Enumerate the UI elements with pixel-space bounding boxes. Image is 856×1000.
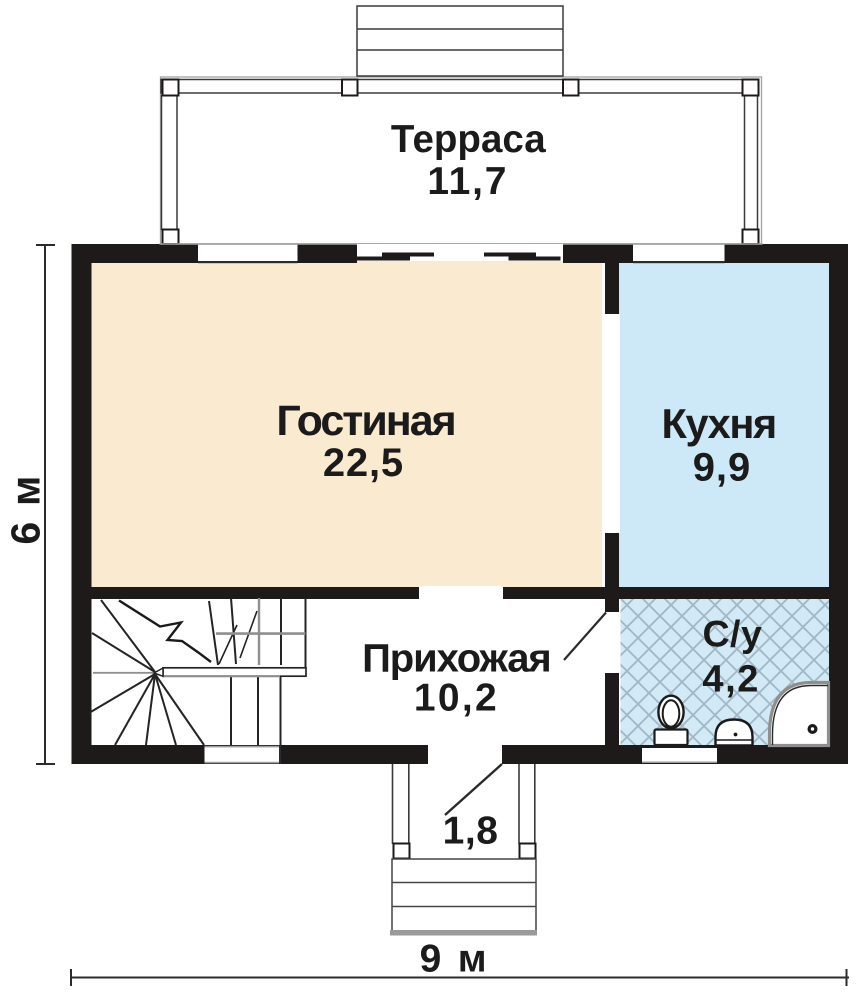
svg-text:9 м: 9 м bbox=[420, 938, 490, 981]
svg-text:9,9: 9,9 bbox=[693, 446, 752, 490]
svg-text:22,5: 22,5 bbox=[323, 441, 404, 485]
svg-text:Кухня: Кухня bbox=[662, 400, 776, 447]
svg-text:Прихожая: Прихожая bbox=[362, 637, 551, 681]
svg-text:С/у: С/у bbox=[702, 613, 762, 655]
svg-text:Терраса: Терраса bbox=[391, 118, 546, 161]
svg-text:1,8: 1,8 bbox=[443, 809, 499, 852]
svg-text:4,2: 4,2 bbox=[702, 659, 760, 701]
svg-text:11,7: 11,7 bbox=[427, 160, 508, 203]
svg-text:Гостиная: Гостиная bbox=[276, 397, 454, 445]
svg-text:10,2: 10,2 bbox=[414, 677, 499, 720]
svg-text:6 м: 6 м bbox=[3, 473, 49, 544]
